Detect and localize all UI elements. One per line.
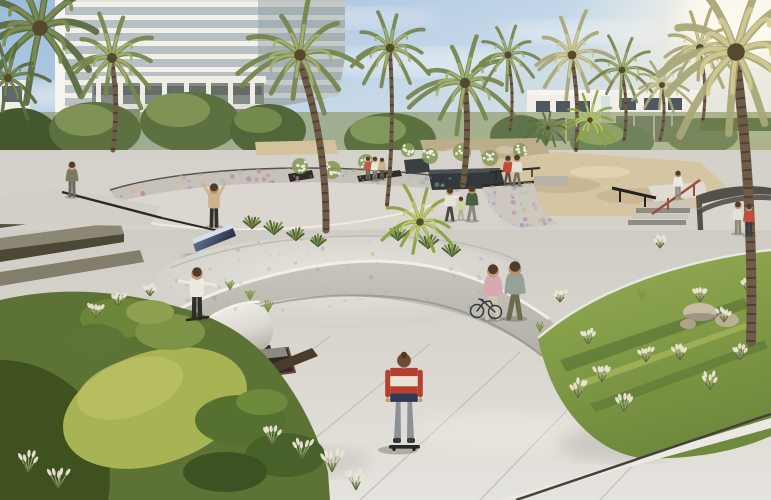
whitebush-plant — [292, 158, 308, 174]
whitebush-plant — [422, 148, 438, 164]
whitebush-plant — [482, 150, 498, 166]
skatepark-render-image — [0, 0, 771, 500]
whitebush-plant — [513, 143, 527, 157]
render-canvas — [0, 0, 771, 500]
whitebush-plant — [401, 143, 415, 157]
